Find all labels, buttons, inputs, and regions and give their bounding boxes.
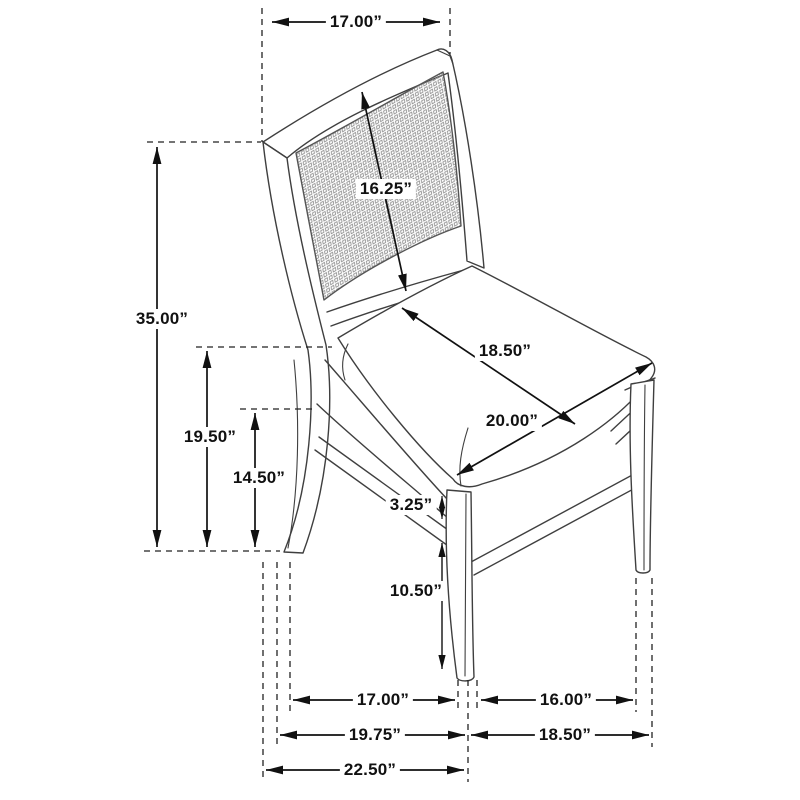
front-left-leg [446, 490, 474, 681]
label-floor-span-front: 17.00” [353, 690, 413, 710]
label-apron-height: 3.25” [386, 495, 437, 515]
label-seat-depth: 20.00” [482, 411, 542, 431]
front-right-leg [630, 380, 654, 573]
seat [317, 266, 655, 519]
label-top-width: 17.00” [326, 12, 386, 32]
dimension-diagram: 17.00” 35.00” 16.25” 18.50” 20.00” 19.50… [0, 0, 800, 800]
label-stretcher-height: 14.50” [229, 468, 289, 488]
label-overall-depth: 22.50” [340, 760, 400, 780]
chair-line-drawing [0, 0, 800, 800]
label-back-panel: 16.25” [356, 179, 416, 199]
label-base-depth: 19.75” [345, 725, 405, 745]
label-seat-height: 19.50” [180, 427, 240, 447]
label-floor-span-side: 16.00” [536, 690, 596, 710]
label-seat-width: 18.50” [475, 341, 535, 361]
label-overall-height: 35.00” [132, 309, 192, 329]
front-stretcher [471, 473, 639, 575]
chair [263, 49, 655, 681]
label-leg-height: 10.50” [386, 581, 446, 601]
label-base-width: 18.50” [535, 725, 595, 745]
